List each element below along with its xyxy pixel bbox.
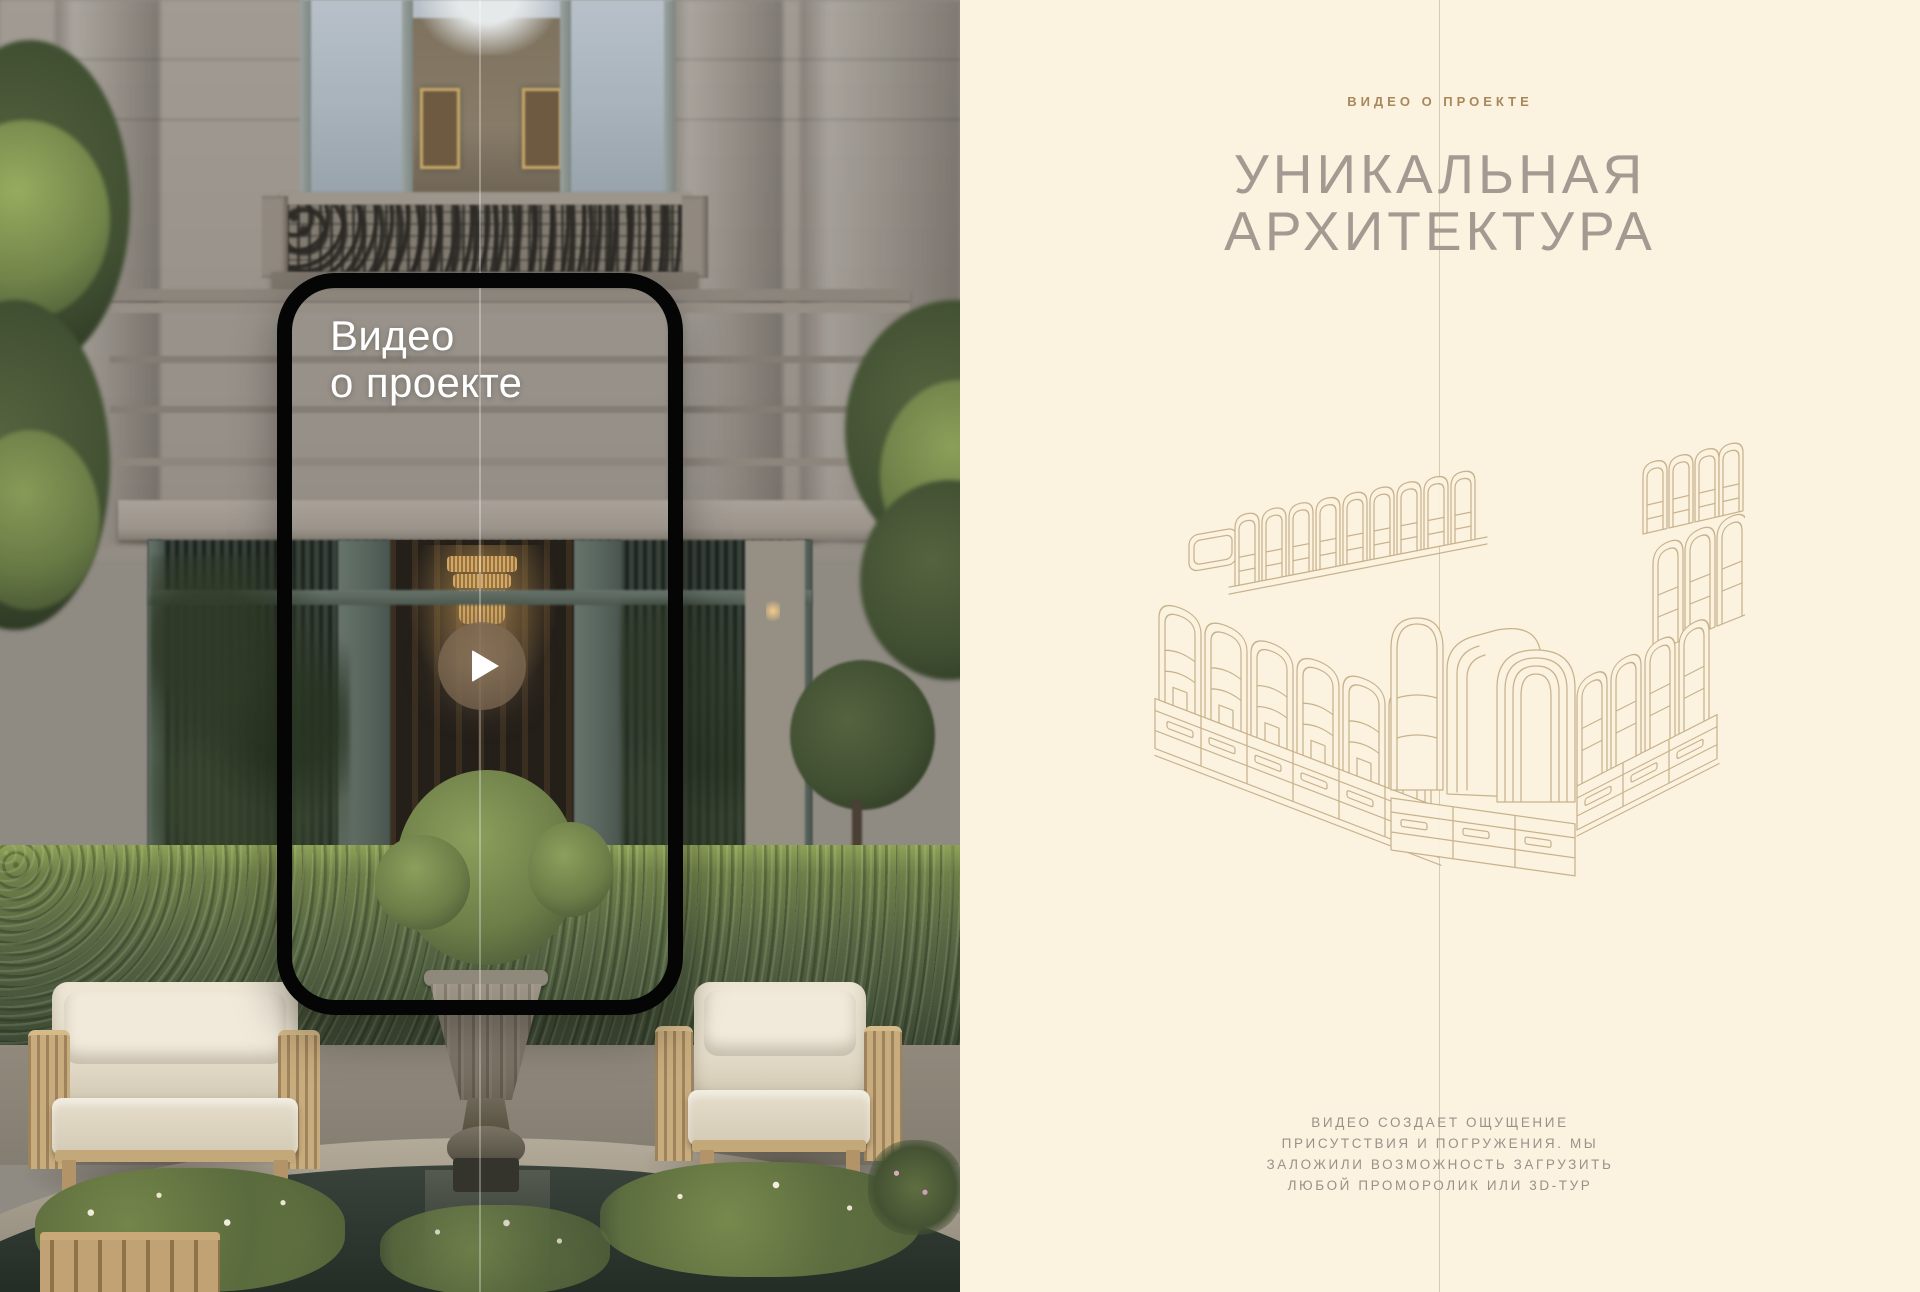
armchair-right — [688, 1090, 870, 1146]
water-plants — [868, 1140, 960, 1235]
section-eyebrow-label: ВИДЕО О ПРОЕКТЕ — [960, 94, 1920, 109]
heading-line2: АРХИТЕКТУРА — [960, 203, 1920, 260]
armchair-right — [864, 1026, 902, 1161]
architecture-line-drawing-illustration — [1145, 438, 1745, 883]
heading-line1: УНИКАЛЬНАЯ — [960, 146, 1920, 203]
artwork-frame — [522, 88, 562, 169]
photo-detail — [420, 0, 555, 55]
play-icon — [472, 650, 499, 682]
photo-detail — [300, 0, 311, 198]
photo-detail — [262, 196, 288, 278]
section-caption: ВИДЕО СОЗДАЕТ ОЩУЩЕНИЕ ПРИСУТСТВИЯ И ПОГ… — [960, 1112, 1920, 1196]
armchair-left — [55, 1150, 295, 1162]
phone-title-line1: Видео — [330, 312, 650, 359]
stone-pier — [745, 540, 805, 860]
armchair-right — [655, 1026, 693, 1161]
armchair-left — [64, 992, 286, 1064]
landing-section: Видео о проекте — [0, 0, 1920, 1292]
phone-title-line2: о проекте — [330, 359, 650, 406]
caption-line3: ЗАЛОЖИЛИ ВОЗМОЖНОСТЬ ЗАГРУЗИТЬ — [960, 1154, 1920, 1175]
section-heading: УНИКАЛЬНАЯ АРХИТЕКТУРА — [960, 146, 1920, 260]
caption-line1: ВИДЕО СОЗДАЕТ ОЩУЩЕНИЕ — [960, 1112, 1920, 1133]
info-panel: ВИДЕО О ПРОЕКТЕ УНИКАЛЬНАЯ АРХИТЕКТУРА В… — [960, 0, 1920, 1292]
wall-lamp — [766, 598, 780, 624]
armchair-right — [692, 1140, 866, 1152]
caption-line4: ЛЮБОЙ ПРОМОРОЛИК ИЛИ 3D-ТУР — [960, 1175, 1920, 1196]
armchair-right — [704, 990, 856, 1056]
balcony-ironwork — [286, 205, 684, 273]
wooden-bench-corner — [40, 1232, 220, 1292]
artwork-frame — [420, 88, 460, 169]
photo-detail — [682, 196, 708, 278]
photo-detail — [664, 0, 675, 198]
balcony-rail — [280, 192, 690, 205]
topiary-ball — [790, 660, 935, 810]
water-plants — [380, 1205, 610, 1292]
phone-screen-title: Видео о проекте — [330, 312, 650, 406]
urn-pedestal — [453, 1158, 519, 1192]
play-button[interactable] — [438, 622, 526, 710]
photo-detail — [560, 0, 571, 198]
photo-detail — [402, 0, 413, 198]
armchair-left — [52, 1098, 298, 1156]
caption-line2: ПРИСУТСТВИЯ И ПОГРУЖЕНИЯ. МЫ — [960, 1133, 1920, 1154]
